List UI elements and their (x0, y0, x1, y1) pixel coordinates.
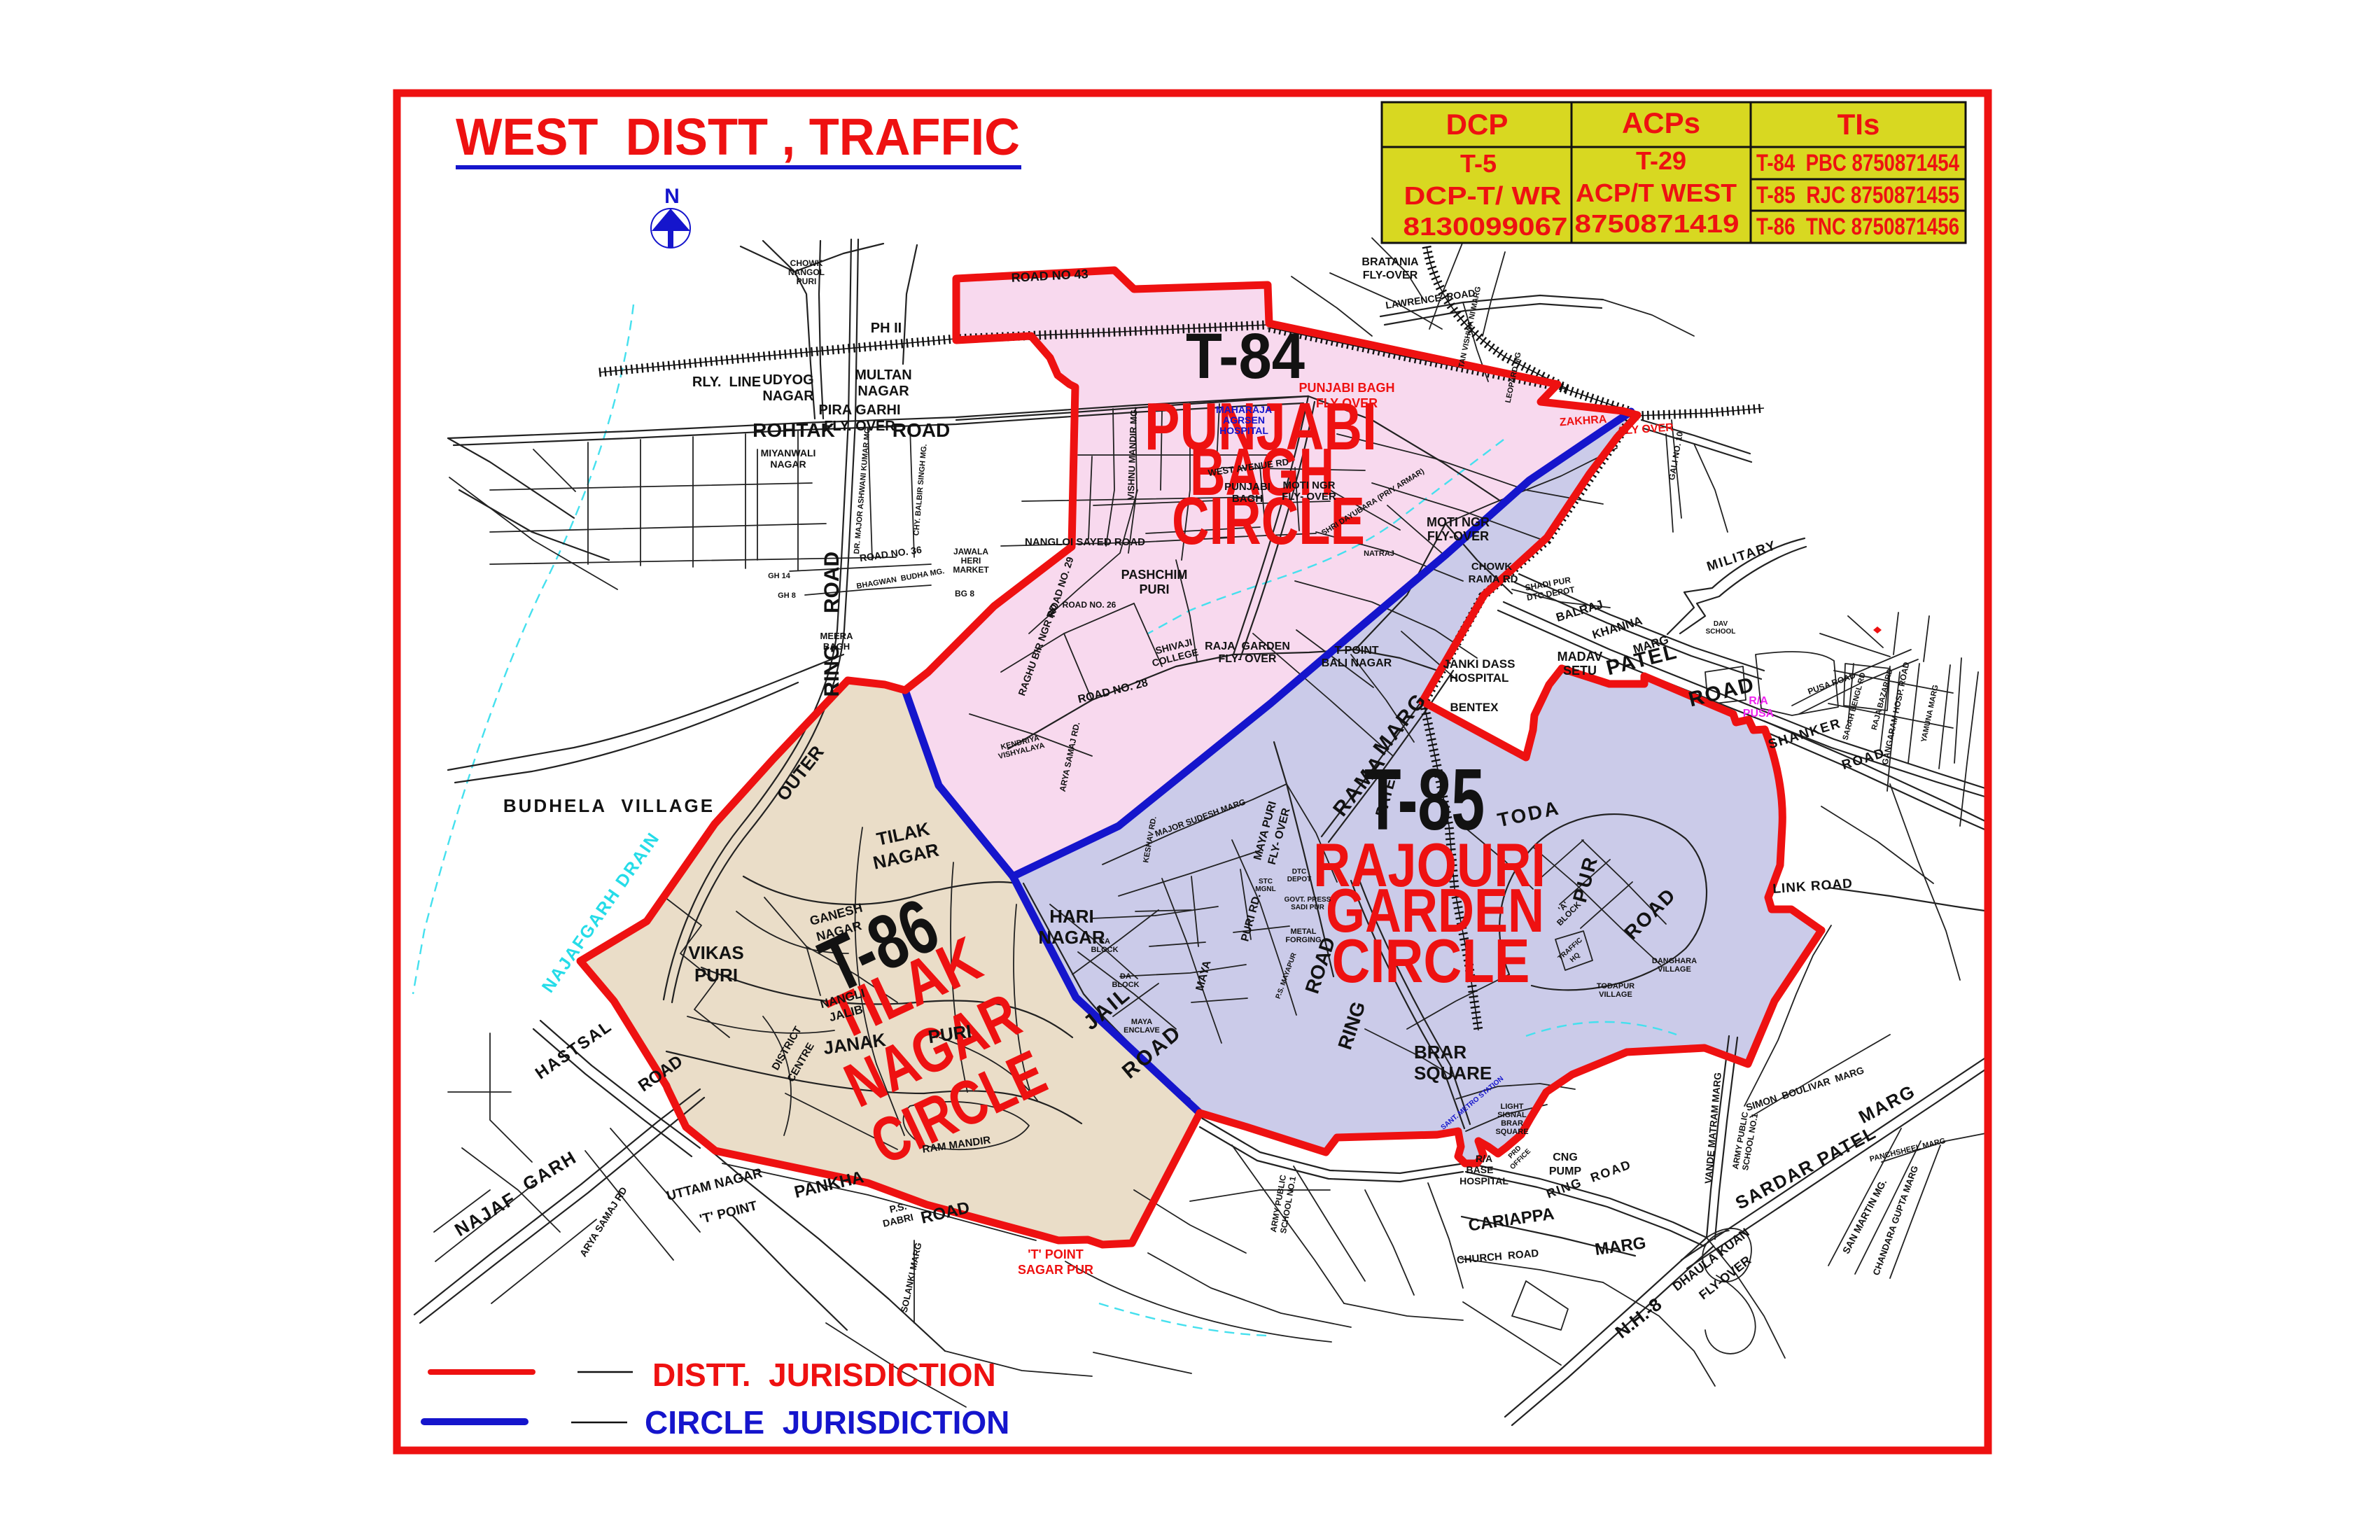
svg-text:RAMA RD: RAMA RD (1469, 573, 1518, 585)
svg-text:FLY- OVER: FLY- OVER (1282, 491, 1336, 503)
svg-text:NAGAR: NAGAR (857, 384, 909, 399)
svg-text:PURI: PURI (1139, 582, 1169, 596)
svg-text:PH II: PH II (871, 321, 902, 336)
svg-text:BASE: BASE (1466, 1164, 1494, 1175)
svg-text:ACPs: ACPs (1622, 106, 1700, 139)
svg-text:CIRCLE JURISDICTION: CIRCLE JURISDICTION (645, 1404, 1009, 1441)
svg-text:DCP-T/ WR: DCP-T/ WR (1404, 181, 1562, 210)
svg-text:HOSPITAL: HOSPITAL (1459, 1175, 1508, 1186)
svg-text:DISTT. JURISDICTION: DISTT. JURISDICTION (652, 1357, 996, 1393)
svg-text:HERI: HERI (961, 556, 981, 566)
svg-text:ENCLAVE: ENCLAVE (1123, 1026, 1160, 1035)
svg-text:DA: DA (1120, 972, 1131, 981)
svg-text:GH 14: GH 14 (768, 572, 791, 580)
svg-text:NATRAJ: NATRAJ (1364, 549, 1394, 558)
svg-text:N: N (664, 185, 680, 208)
svg-text:CHOWK: CHOWK (790, 258, 823, 268)
svg-text:JAWALA: JAWALA (953, 547, 988, 556)
svg-text:SQUARE: SQUARE (1495, 1128, 1528, 1136)
svg-text:TODAPUR: TODAPUR (1597, 982, 1634, 990)
svg-text:8750871419: 8750871419 (1575, 209, 1739, 238)
svg-text:AGRSEN: AGRSEN (1223, 414, 1265, 426)
svg-text:BRAR: BRAR (1501, 1119, 1523, 1128)
svg-text:FLY- OVER: FLY- OVER (1219, 653, 1277, 665)
svg-text:BLOCK: BLOCK (1091, 946, 1118, 954)
svg-text:MAYA: MAYA (1131, 1018, 1152, 1026)
svg-text:GH 8: GH 8 (778, 591, 796, 600)
svg-text:MIYANWALI: MIYANWALI (761, 447, 816, 458)
svg-text:BRAR: BRAR (1414, 1042, 1466, 1063)
svg-text:DTC: DTC (1292, 868, 1307, 876)
svg-text:BENTEX: BENTEX (1450, 701, 1499, 714)
svg-text:RAJA GARDEN: RAJA GARDEN (1205, 640, 1290, 652)
svg-text:MGNL: MGNL (1255, 885, 1275, 893)
svg-text:MADAV: MADAV (1557, 650, 1603, 664)
svg-text:RING: RING (820, 645, 843, 697)
svg-text:HOSPITAL: HOSPITAL (1219, 425, 1268, 436)
svg-text:T-5: T-5 (1460, 149, 1497, 178)
svg-text:STC: STC (1259, 878, 1273, 885)
svg-text:NANGLOI SAYED ROAD: NANGLOI SAYED ROAD (1025, 536, 1145, 548)
svg-text:TIs: TIs (1837, 108, 1880, 141)
svg-text:UDYOG: UDYOG (762, 372, 813, 388)
svg-text:BUDHELA VILLAGE: BUDHELA VILLAGE (503, 795, 715, 816)
svg-text:8130099067: 8130099067 (1403, 212, 1568, 241)
svg-text:LIGHT: LIGHT (1501, 1102, 1524, 1111)
svg-text:VILLAGE: VILLAGE (1599, 990, 1632, 999)
svg-text:MOTI NGR: MOTI NGR (1283, 479, 1336, 491)
svg-text:T-85 RJC 8750871455: T-85 RJC 8750871455 (1756, 182, 1959, 209)
svg-text:ROAD: ROAD (820, 552, 843, 613)
svg-text:DEPOT: DEPOT (1287, 876, 1311, 883)
svg-text:NAGAR: NAGAR (762, 388, 814, 404)
svg-text:CNG: CNG (1553, 1151, 1578, 1163)
svg-text:MULTAN: MULTAN (855, 367, 911, 383)
svg-text:CA: CA (1099, 937, 1110, 946)
svg-text:BAGH: BAGH (1232, 493, 1263, 505)
svg-text:DCP: DCP (1446, 108, 1508, 141)
svg-text:HOSPITAL: HOSPITAL (1450, 671, 1509, 685)
svg-text:SIGNAL: SIGNAL (1497, 1111, 1527, 1119)
svg-text:DANGHARA: DANGHARA (1652, 957, 1697, 965)
svg-text:CHOWK: CHOWK (1471, 561, 1512, 573)
svg-text:RLY. LINE: RLY. LINE (692, 374, 761, 390)
svg-text:FLY-OVER: FLY-OVER (1316, 396, 1378, 410)
svg-text:GOVT. PRESS: GOVT. PRESS (1284, 896, 1331, 904)
svg-text:SAGAR PUR: SAGAR PUR (1018, 1263, 1093, 1277)
svg-text:ROHTAK: ROHTAK (752, 419, 835, 441)
svg-text:MEERA: MEERA (820, 631, 854, 641)
svg-text:T-84 PBC 8750871454: T-84 PBC 8750871454 (1756, 150, 1959, 176)
svg-text:ROAD NO. 26: ROAD NO. 26 (1063, 600, 1116, 610)
svg-text:PUNJABI: PUNJABI (1224, 481, 1270, 493)
svg-text:HARI: HARI (1049, 906, 1094, 927)
svg-text:SCHOOL: SCHOOL (1706, 628, 1736, 636)
svg-text:SADI PUR: SADI PUR (1291, 904, 1325, 911)
svg-text:SETU: SETU (1563, 664, 1597, 678)
svg-text:PURI: PURI (797, 276, 817, 286)
svg-text:ROAD: ROAD (892, 419, 950, 441)
svg-text:WEST DISTT , TRAFFIC: WEST DISTT , TRAFFIC (456, 108, 1020, 166)
svg-text:VIKAS: VIKAS (688, 942, 743, 963)
svg-text:DAV: DAV (1714, 620, 1728, 628)
svg-text:PASHCHIM: PASHCHIM (1121, 568, 1188, 582)
svg-text:NAGAR: NAGAR (1038, 927, 1105, 948)
svg-text:T POINT: T POINT (1334, 645, 1378, 657)
svg-text:BG 8: BG 8 (955, 589, 974, 598)
svg-text:FLY-OVER: FLY-OVER (1363, 269, 1418, 281)
svg-text:MAHARAJA: MAHARAJA (1216, 404, 1272, 415)
svg-text:MARKET: MARKET (953, 565, 989, 575)
svg-text:MOTI NGR: MOTI NGR (1427, 515, 1490, 529)
svg-text:ACP/T WEST: ACP/T WEST (1576, 178, 1737, 207)
svg-text:'T' POINT: 'T' POINT (1028, 1247, 1084, 1261)
svg-text:T-29: T-29 (1636, 146, 1686, 175)
svg-text:T-86 TNC 8750871456: T-86 TNC 8750871456 (1756, 213, 1959, 240)
svg-text:NANGOL: NANGOL (788, 267, 825, 277)
svg-text:VILLAGE: VILLAGE (1658, 965, 1691, 974)
svg-text:R/A: R/A (1749, 695, 1768, 707)
svg-text:PURI: PURI (694, 965, 738, 986)
svg-text:BALI NAGAR: BALI NAGAR (1322, 657, 1392, 669)
svg-text:CIRCLE: CIRCLE (1332, 926, 1530, 995)
svg-text:R/A: R/A (1476, 1153, 1492, 1164)
svg-text:PIRA GARHI: PIRA GARHI (818, 402, 900, 418)
svg-text:FLY-OVER: FLY-OVER (1427, 529, 1489, 543)
svg-text:T-84: T-84 (1186, 321, 1305, 392)
svg-text:SQUARE: SQUARE (1414, 1063, 1492, 1084)
svg-text:JANKI DASS: JANKI DASS (1443, 657, 1515, 671)
svg-text:BRATANIA: BRATANIA (1361, 256, 1419, 268)
svg-text:PUSA: PUSA (1743, 708, 1774, 720)
svg-text:NAGAR: NAGAR (770, 458, 806, 470)
svg-text:BAGH: BAGH (823, 641, 850, 652)
svg-text:PUNJABI BAGH: PUNJABI BAGH (1298, 381, 1394, 395)
svg-text:METAL: METAL (1290, 927, 1316, 936)
